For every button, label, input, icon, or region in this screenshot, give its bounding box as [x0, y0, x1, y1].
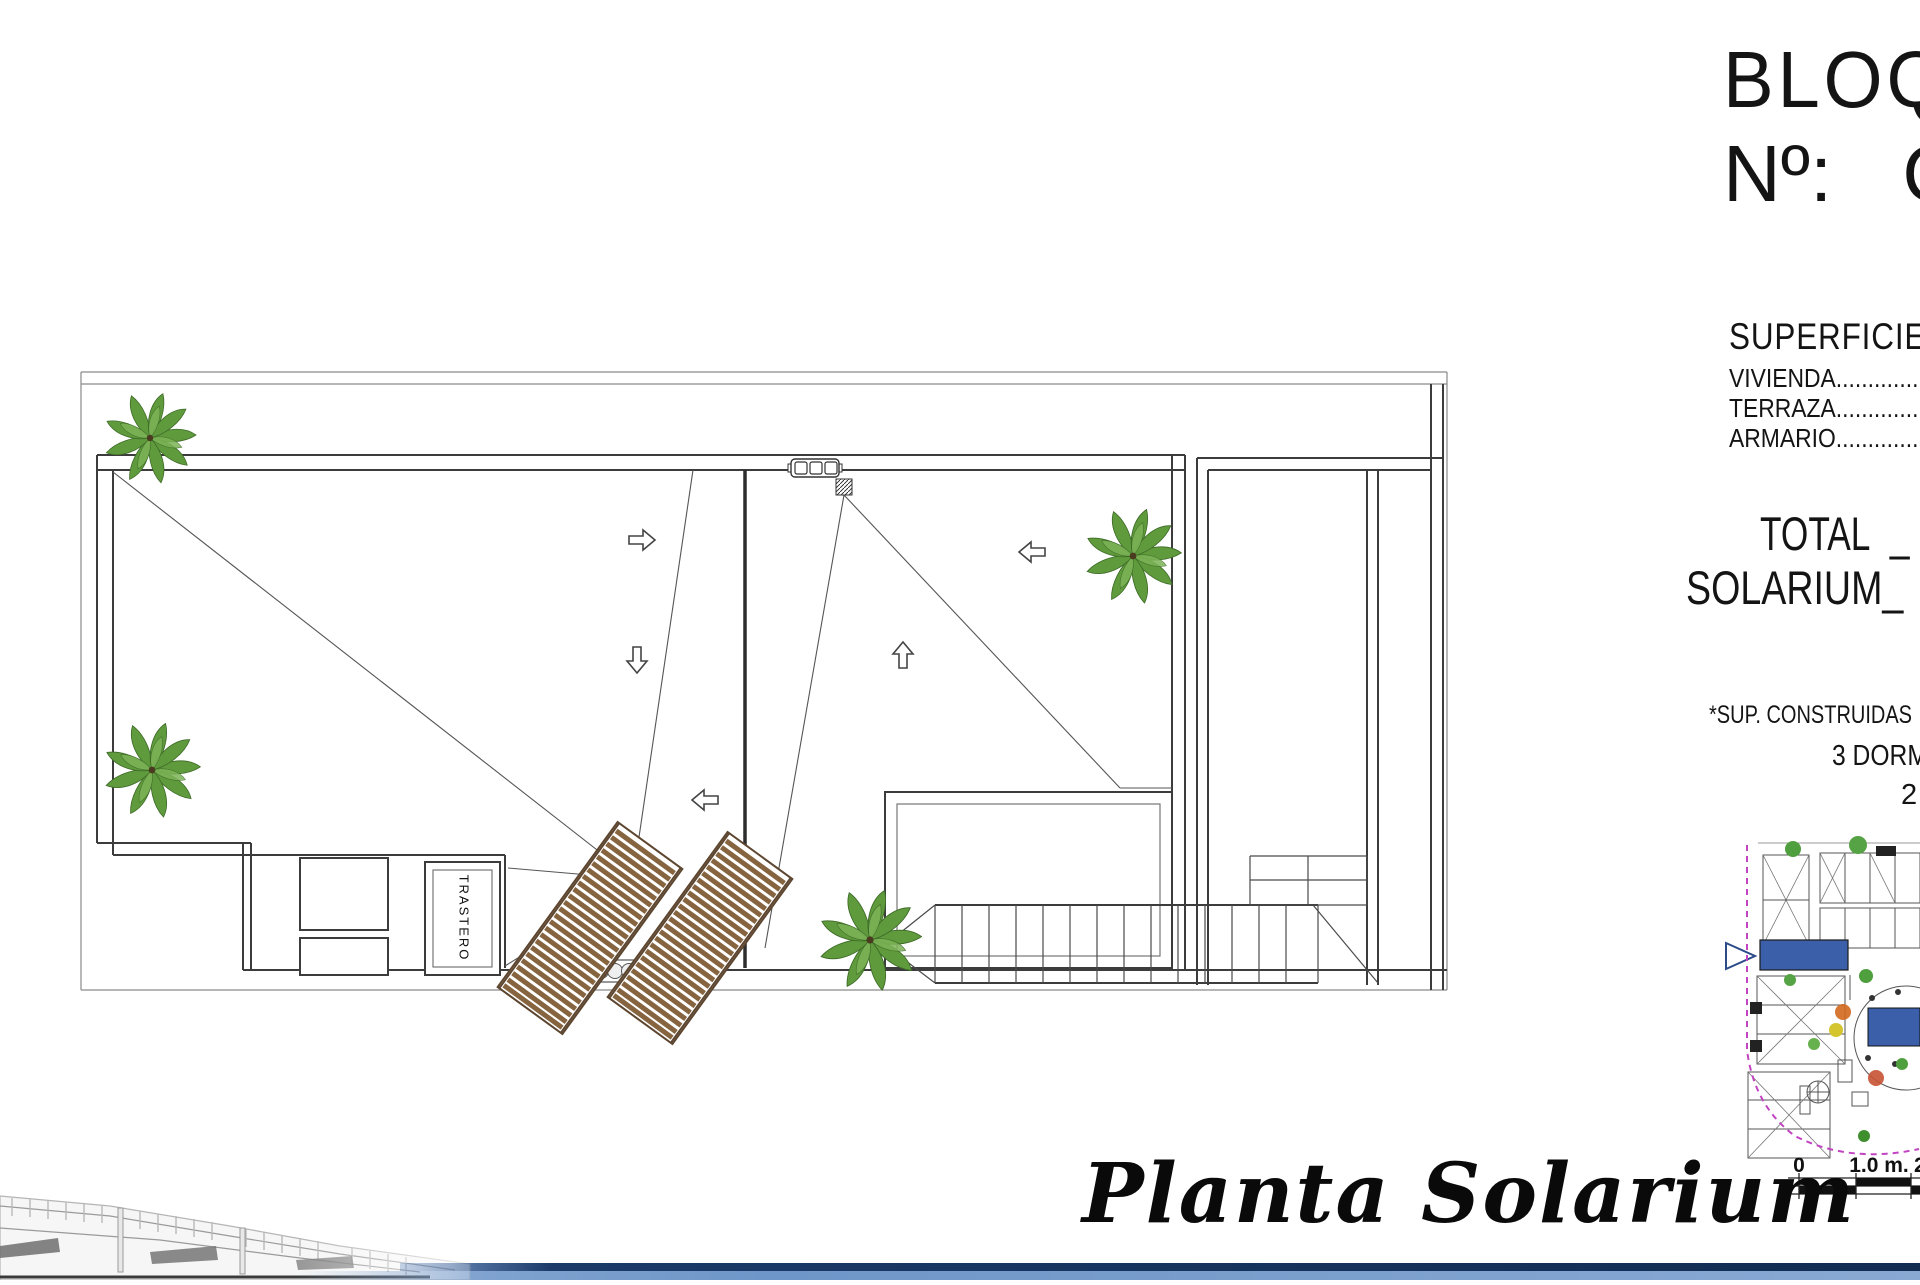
block-number-label: Nº:	[1723, 129, 1832, 218]
site-buildings	[1748, 846, 1920, 1158]
storage-room: TRASTERO	[425, 862, 500, 975]
adjacent-unit-walls	[1197, 384, 1443, 990]
sheet-graphics: TRASTERO	[0, 0, 1920, 1280]
block-number-line: Nº:C	[1723, 128, 1920, 220]
slope-arrow-icon	[692, 790, 718, 810]
site-key-map	[1726, 836, 1920, 1158]
slope-arrow-icon	[1019, 542, 1045, 562]
storage-room-label: TRASTERO	[457, 875, 472, 962]
plan-caption: Planta Solarium	[1082, 1146, 1856, 1242]
svg-text:2: 2	[1914, 1154, 1920, 1177]
footnote-bathrooms: 2	[1901, 779, 1917, 812]
plot-boundary	[1747, 845, 1919, 1154]
floor-plan: TRASTERO	[81, 372, 1447, 1044]
solarium-line: SOLARIUM_	[1686, 560, 1920, 615]
block-title: BLOQ	[1723, 34, 1920, 126]
roof-drain	[836, 479, 852, 495]
slope-arrow-icon	[629, 530, 655, 550]
surface-row-vivienda: VIVIENDA......................	[1729, 363, 1920, 394]
site-pool-plaza	[1807, 986, 1920, 1103]
landing-steps	[1250, 856, 1367, 905]
footnote-bedrooms: 3 DORM	[1832, 740, 1920, 773]
planter	[300, 938, 388, 975]
planter	[300, 858, 388, 930]
building-elevation	[0, 1196, 470, 1280]
footnote: *SUP. CONSTRUIDAS	[1709, 701, 1920, 730]
surface-row-armario: ARMARIO......................	[1729, 423, 1920, 454]
svg-text:1.0 m.: 1.0 m.	[1849, 1154, 1909, 1177]
slope-arrow-icon	[627, 647, 647, 673]
surface-row-terraza: TERRAZA......................	[1729, 393, 1920, 424]
surfaces-heading: SUPERFICIE	[1729, 316, 1920, 358]
roof-vent	[788, 459, 842, 477]
highlighted-unit	[1760, 940, 1848, 970]
palm-tree-icon	[104, 721, 200, 818]
slope-arrow-icon	[893, 642, 913, 668]
block-number-value: C	[1902, 128, 1920, 220]
unit-pointer-icon	[1726, 943, 1755, 969]
total-line: TOTAL_9	[1760, 506, 1920, 561]
palm-tree-icon	[1085, 507, 1181, 604]
drawing-sheet: TRASTERO	[0, 0, 1920, 1280]
stair-bulkhead	[885, 792, 1172, 968]
